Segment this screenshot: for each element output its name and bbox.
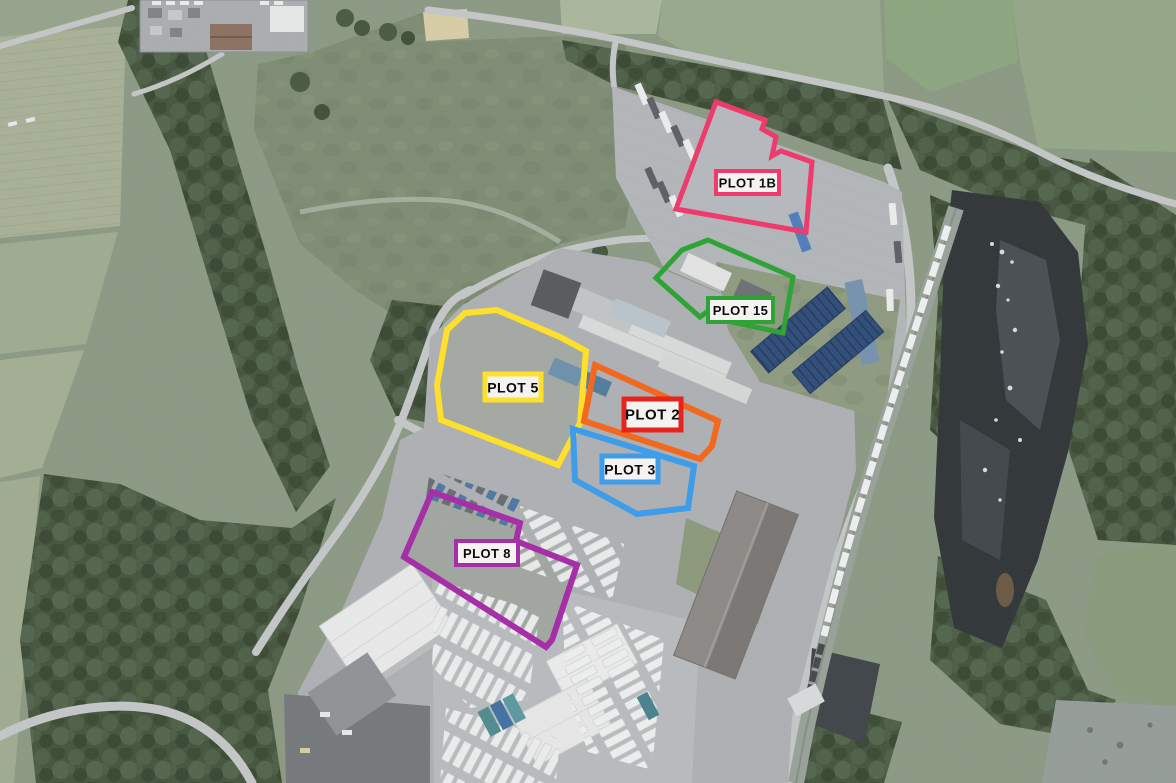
plot-label-text-2: PLOT 2 <box>625 407 680 424</box>
plot-label-text-3: PLOT 3 <box>604 462 655 478</box>
aerial-site-plan: PLOT 1BPLOT 15PLOT 5PLOT 2PLOT 3PLOT 8 <box>0 0 1176 783</box>
aerial-photo: PLOT 1BPLOT 15PLOT 5PLOT 2PLOT 3PLOT 8 <box>0 0 1176 783</box>
plot-label-text-8: PLOT 8 <box>463 546 511 561</box>
plot-label-text-5: PLOT 5 <box>487 380 538 396</box>
plot-label-text-15: PLOT 15 <box>713 303 769 318</box>
plot-label-text-1b: PLOT 1B <box>719 176 777 191</box>
